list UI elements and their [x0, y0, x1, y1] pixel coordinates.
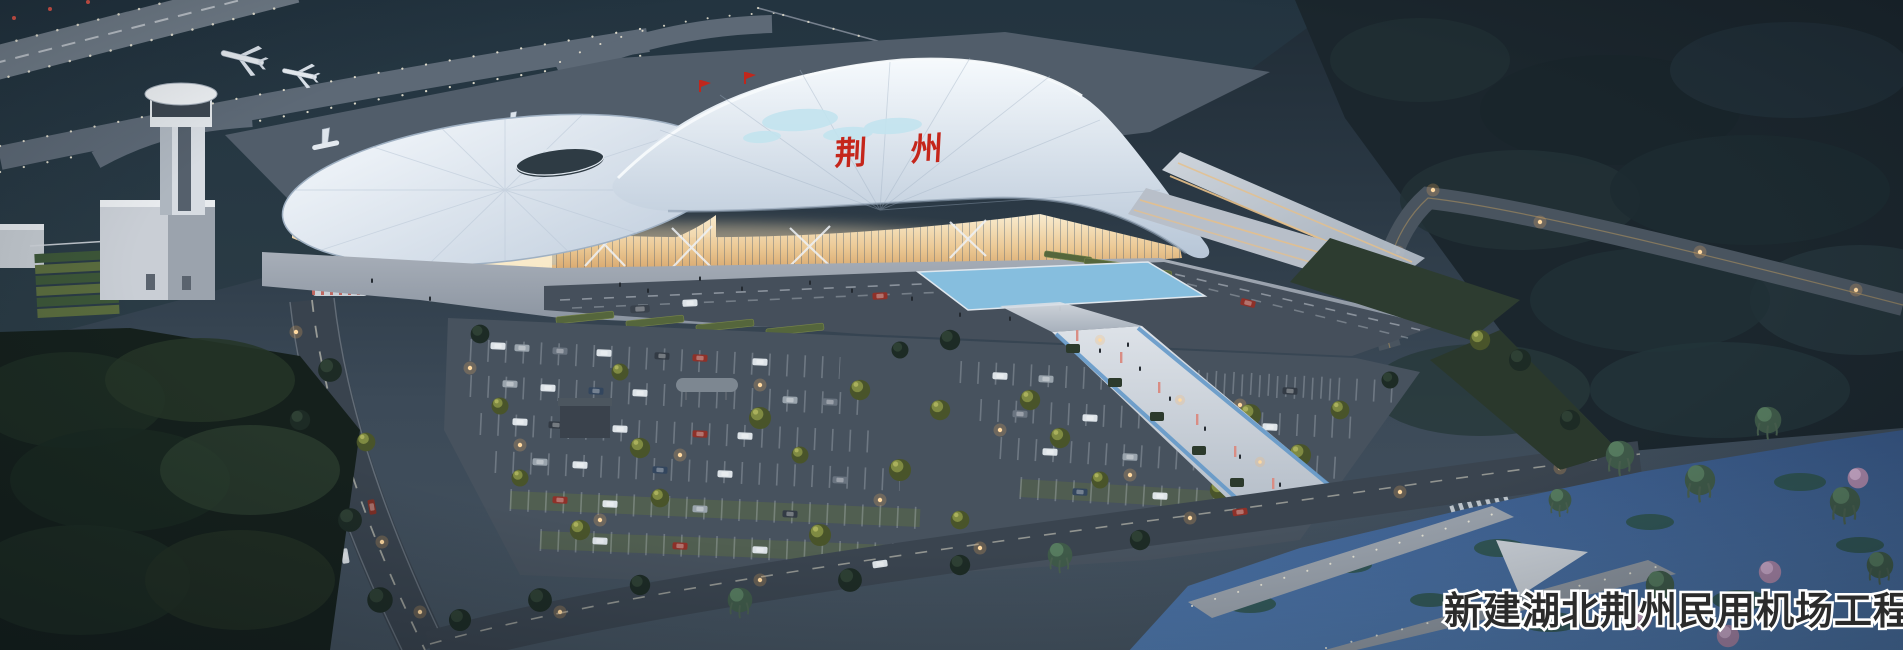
vignette-overlay [0, 0, 1903, 650]
airport-night-rendering: 荆州 [0, 0, 1903, 650]
scene-canvas: 荆州 [0, 0, 1903, 650]
project-caption: 新建湖北荆州民用机场工程 [1444, 589, 1903, 633]
